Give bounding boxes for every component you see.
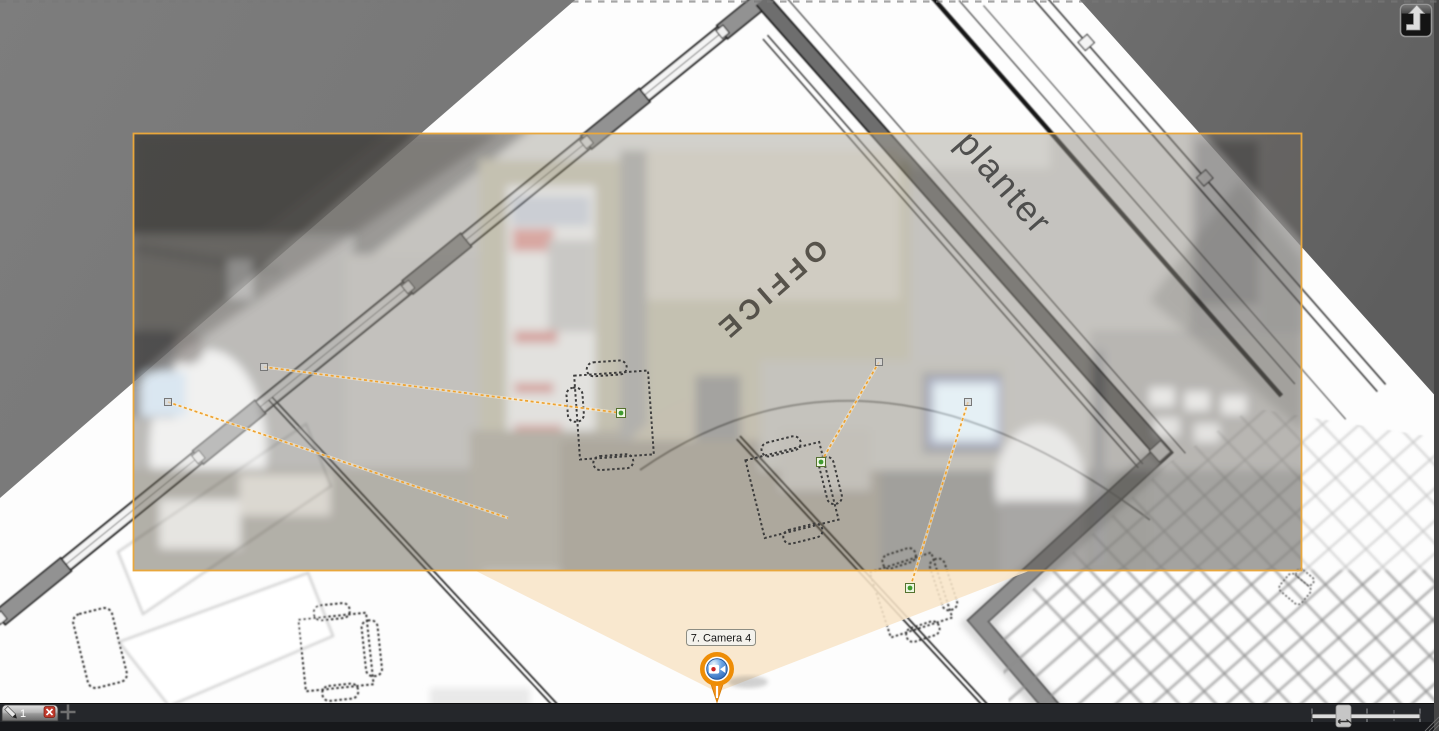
svg-text:1: 1 — [20, 708, 26, 720]
svg-text:7. Camera 4: 7. Camera 4 — [691, 633, 752, 645]
